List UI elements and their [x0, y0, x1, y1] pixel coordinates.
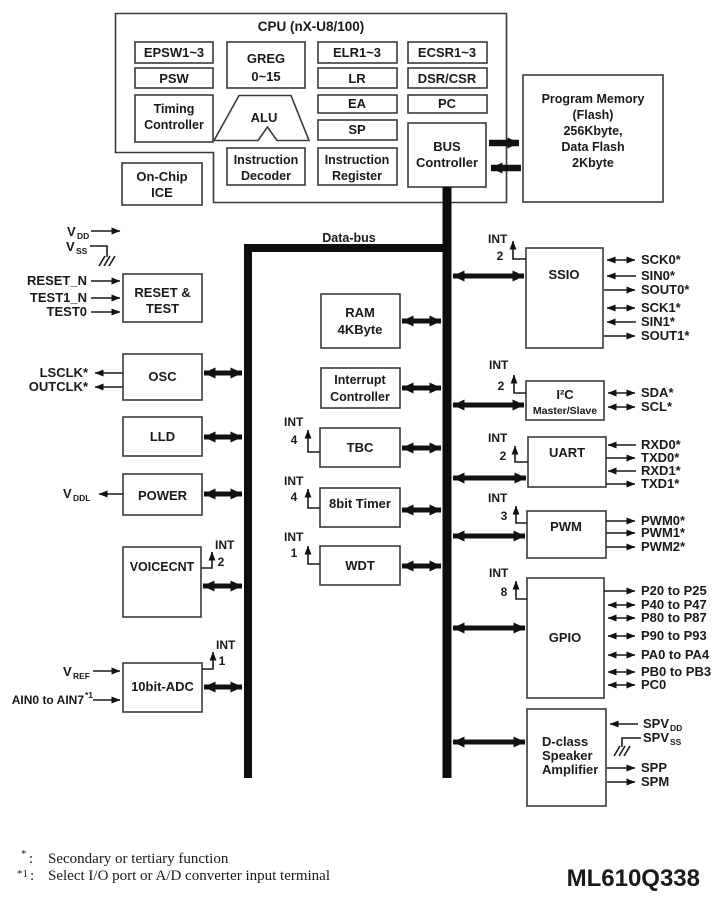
p8-pin: P80 to P87	[641, 610, 707, 625]
sck1-pin: SCK1*	[641, 300, 682, 315]
sck0-pin: SCK0*	[641, 252, 682, 267]
bus-controller-label-1: BUS	[433, 139, 461, 154]
ml610q338-block-diagram: CPU (nX-U8/100) EPSW1~3 PSW Timing Contr…	[0, 0, 722, 900]
adc-int-count: 1	[219, 654, 226, 668]
lsclk-pin: LSCLK*	[40, 365, 89, 380]
p2-pin: P20 to P25	[641, 583, 707, 598]
timer8-label: 8bit Timer	[329, 496, 391, 511]
ireg-label-1: Instruction	[325, 153, 390, 167]
pc-pin: PC0	[641, 677, 666, 692]
spm-pin: SPM	[641, 774, 669, 789]
p9-pin: P90 to P93	[641, 628, 707, 643]
uart-label: UART	[549, 445, 585, 460]
module-interrupt-controller: Interrupt Controller	[321, 368, 441, 408]
program-memory-line-5: 2Kbyte	[572, 156, 614, 170]
part-number: ML610Q338	[567, 865, 700, 892]
dclass-label-3: Amplifier	[542, 762, 598, 777]
spvss-sub: SS	[670, 737, 682, 747]
module-i2c: I²C Master/Slave INT 2 SDA* SCL*	[453, 358, 674, 420]
greg-label-1: GREG	[247, 51, 285, 66]
adc-int-label: INT	[216, 638, 236, 652]
spvdd-pin: SPV	[643, 716, 669, 731]
wdt-int-count: 1	[291, 546, 298, 560]
voicecnt-int-arrow	[201, 552, 212, 568]
module-wdt: WDT INT 1	[284, 530, 441, 585]
gpio-int-arrow	[516, 581, 527, 599]
sout0-pin: SOUT0*	[641, 282, 690, 297]
sin1-pin: SIN1*	[641, 314, 676, 329]
sin0-pin: SIN0*	[641, 268, 676, 283]
greg-label-2: 0~15	[251, 69, 280, 84]
spvss-wire	[622, 738, 641, 747]
footer: * : Secondary or tertiary function *1 : …	[17, 848, 700, 892]
footnote1-text: Secondary or tertiary function	[48, 851, 229, 867]
sda-pin: SDA*	[641, 385, 674, 400]
module-gpio: GPIO INT 8 P20 to P25 P40 to P47 P80 to …	[453, 566, 711, 698]
tbc-label: TBC	[347, 440, 374, 455]
module-dclass-amp: D-class Speaker Amplifier SPV DD SPV SS …	[453, 709, 682, 806]
footnote1-marker: *	[21, 848, 27, 860]
ssio-int-count: 2	[497, 249, 504, 263]
outclk-pin: OUTCLK*	[29, 379, 89, 394]
ea-label: EA	[348, 96, 367, 111]
cpu-title: CPU (nX-U8/100)	[258, 19, 365, 34]
data-bus-label: Data-bus	[322, 231, 376, 245]
ssio-int-arrow	[513, 241, 526, 259]
vddl-sub: DDL	[73, 493, 90, 503]
txd1-pin: TXD1*	[641, 476, 680, 491]
module-pwm: PWM INT 3 PWM0* PWM1* PWM2*	[453, 491, 686, 558]
timing-label-1: Timing	[154, 102, 195, 116]
ecsr-label: ECSR1~3	[418, 45, 476, 60]
module-uart: UART INT 2 RXD0* TXD0* RXD1* TXD1*	[453, 431, 682, 491]
footnote2-separator: :	[30, 868, 34, 884]
sp-label: SP	[348, 122, 366, 137]
intc-label-1: Interrupt	[334, 373, 386, 387]
wdt-int-arrow	[308, 546, 320, 564]
lr-label: LR	[348, 71, 366, 86]
wdt-int-label: INT	[284, 530, 304, 544]
diagram-canvas: CPU (nX-U8/100) EPSW1~3 PSW Timing Contr…	[0, 0, 722, 900]
test0-pin: TEST0	[47, 304, 87, 319]
vdd-sub: DD	[77, 231, 89, 241]
intc-label-2: Controller	[330, 390, 390, 404]
module-lld: LLD	[123, 417, 242, 456]
spvss-pin: SPV	[643, 730, 669, 745]
sout1-pin: SOUT1*	[641, 328, 690, 343]
power-pins: V DD V SS	[66, 224, 120, 266]
ssio-int-label: INT	[488, 232, 508, 246]
idec-label-1: Instruction	[234, 153, 299, 167]
ssio-box	[526, 248, 603, 348]
psw-label: PSW	[159, 71, 189, 86]
alu-label: ALU	[251, 110, 278, 125]
ireg-label-2: Register	[332, 169, 382, 183]
ram-label-2: 4KByte	[338, 322, 383, 337]
vss-sub: SS	[76, 246, 88, 256]
epsw-label: EPSW1~3	[144, 45, 204, 60]
idec-label-2: Decoder	[241, 169, 291, 183]
timer8-int-count: 4	[291, 490, 298, 504]
on-chip-ice-label-2: ICE	[151, 185, 173, 200]
on-chip-ice: On-Chip ICE	[122, 163, 202, 205]
osc-label: OSC	[148, 369, 177, 384]
footnote2-text: Select I/O port or A/D converter input t…	[48, 868, 330, 884]
voicecnt-box	[123, 547, 201, 617]
module-tbc: TBC INT 4	[284, 415, 441, 467]
ram-label-1: RAM	[345, 305, 375, 320]
dsr-csr-label: DSR/CSR	[418, 71, 477, 86]
gpio-int-label: INT	[489, 566, 509, 580]
program-memory-line-3: 256Kbyte,	[563, 124, 622, 138]
vref-sub: REF	[73, 671, 90, 681]
dclass-label-2: Speaker	[542, 748, 593, 763]
adc-label: 10bit-ADC	[131, 679, 194, 694]
i2c-int-arrow	[514, 375, 526, 393]
ssio-label: SSIO	[548, 267, 579, 282]
pwm2-pin: PWM2*	[641, 539, 686, 554]
i2c-sublabel: Master/Slave	[533, 405, 597, 417]
bus-controller-label-2: Controller	[416, 155, 478, 170]
ain-pin: AIN0 to AIN7	[12, 693, 85, 707]
ain-sup: *1	[85, 690, 93, 700]
reset-n-pin: RESET_N	[27, 273, 87, 288]
module-ssio: SSIO INT 2 SCK0* SIN0* SOUT0* SCK1* SIN1…	[453, 232, 690, 348]
pwm1-pin: PWM1*	[641, 525, 686, 540]
vref-label: V	[63, 664, 72, 679]
scl-pin: SCL*	[641, 399, 673, 414]
module-reset-test: RESET & TEST RESET_N TEST1_N TEST0	[27, 273, 202, 322]
module-osc: OSC LSCLK* OUTCLK*	[29, 354, 242, 400]
i2c-int-count: 2	[498, 379, 505, 393]
uart-int-count: 2	[500, 449, 507, 463]
reset-test-label-2: TEST	[146, 301, 179, 316]
pc-label: PC	[438, 96, 457, 111]
vss-ground-icon	[99, 256, 115, 266]
pa-pin: PA0 to PA4	[641, 647, 710, 662]
gpio-int-count: 8	[501, 585, 508, 599]
vss-wire	[90, 246, 107, 257]
reset-test-label-1: RESET &	[134, 285, 190, 300]
voicecnt-label: VOICECNT	[130, 560, 195, 574]
elr-label: ELR1~3	[333, 45, 381, 60]
vdd-label: V	[67, 224, 76, 239]
footnote2-marker: *1	[17, 868, 28, 880]
gpio-label: GPIO	[549, 630, 582, 645]
spp-pin: SPP	[641, 760, 667, 775]
timer8-int-arrow	[308, 489, 320, 508]
voicecnt-int-count: 2	[218, 555, 225, 569]
vddl-label: V	[63, 486, 72, 501]
i2c-label: I²C	[556, 387, 574, 402]
vss-label: V	[66, 239, 75, 254]
program-memory-line-4: Data Flash	[561, 140, 624, 154]
module-power: POWER V DDL	[63, 474, 242, 515]
module-8bit-timer: 8bit Timer INT 4	[284, 474, 441, 527]
spvdd-sub: DD	[670, 723, 682, 733]
pwm-int-count: 3	[501, 509, 508, 523]
tbc-int-count: 4	[291, 433, 298, 447]
pwm-int-arrow	[516, 506, 527, 523]
tbc-int-label: INT	[284, 415, 304, 429]
program-memory-line-1: Program Memory	[542, 92, 645, 106]
uart-int-label: INT	[488, 431, 508, 445]
pwm-label: PWM	[550, 519, 582, 534]
pwm-int-label: INT	[488, 491, 508, 505]
wdt-label: WDT	[345, 558, 375, 573]
tbc-int-arrow	[308, 430, 320, 452]
lld-label: LLD	[150, 429, 175, 444]
module-ram: RAM 4KByte	[321, 294, 441, 348]
footnote1-separator: :	[29, 851, 33, 867]
program-memory: Program Memory (Flash) 256Kbyte, Data Fl…	[489, 75, 663, 202]
spvss-ground-icon	[614, 746, 630, 756]
test1-n-pin: TEST1_N	[30, 290, 87, 305]
voicecnt-int-label: INT	[215, 538, 235, 552]
power-label: POWER	[138, 488, 188, 503]
program-memory-line-2: (Flash)	[573, 108, 614, 122]
timing-label-2: Controller	[144, 118, 204, 132]
timer8-int-label: INT	[284, 474, 304, 488]
module-voicecnt: VOICECNT INT 2	[123, 538, 242, 617]
module-adc: 10bit-ADC V REF AIN0 to AIN7 *1 INT 1	[12, 638, 242, 712]
system-bus: Data-bus	[244, 187, 449, 778]
ram-box	[321, 294, 400, 348]
dclass-label-1: D-class	[542, 734, 588, 749]
i2c-int-label: INT	[489, 358, 509, 372]
adc-int-arrow	[202, 652, 213, 669]
on-chip-ice-label-1: On-Chip	[136, 169, 187, 184]
uart-int-arrow	[515, 446, 528, 462]
